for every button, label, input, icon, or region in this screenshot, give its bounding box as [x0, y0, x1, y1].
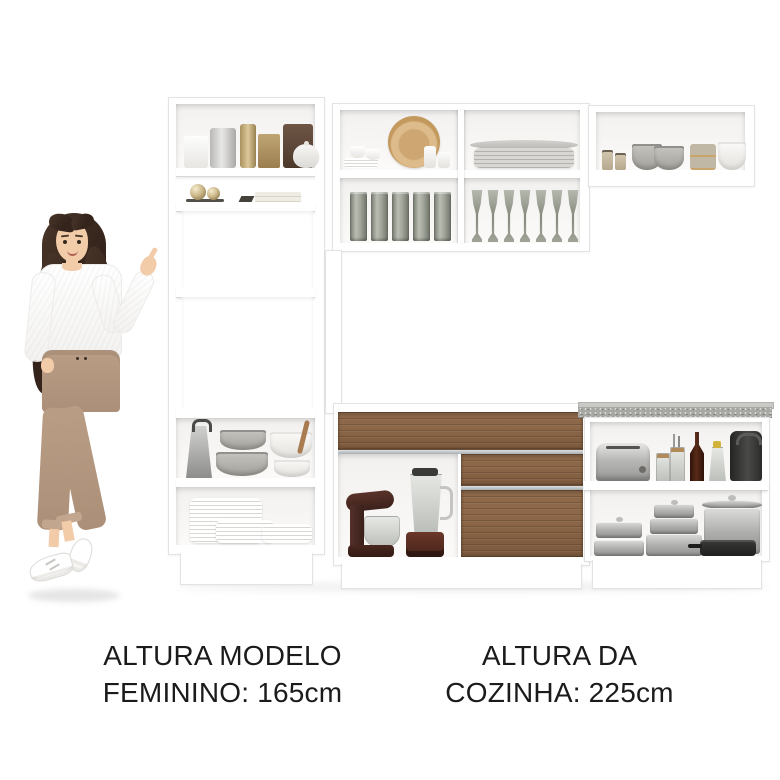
caption-kitchen-height-line1: ALTURA DA	[437, 637, 682, 674]
plate-stack-small	[262, 524, 312, 543]
right-base-plinth	[592, 560, 762, 589]
drawer-lower	[461, 490, 583, 557]
ankle-front	[61, 520, 74, 541]
gray-bowl-top	[220, 430, 266, 450]
caption-model-height: ALTURA MODELO FEMININO: 165cm	[95, 637, 350, 711]
hutch-cell-bottom-right	[464, 178, 580, 243]
stand-mixer-base	[348, 545, 394, 557]
tumbler	[434, 192, 451, 241]
decor-sphere-small	[207, 187, 220, 200]
teapot	[293, 144, 319, 168]
frying-pan	[700, 540, 756, 556]
gold-canister	[240, 124, 256, 168]
hutch-divider	[458, 110, 464, 243]
toaster-slot	[606, 446, 640, 449]
beige-canister-2	[615, 153, 626, 170]
decor-sphere-large	[190, 184, 206, 200]
gold-box	[258, 134, 280, 168]
utensil-jar	[670, 447, 685, 483]
pot-with-lid	[596, 522, 642, 538]
stand-mixer-bowl	[364, 516, 400, 548]
grater-handle	[192, 419, 212, 432]
caption-kitchen-height-line2: COZINHA: 225cm	[437, 674, 682, 711]
coffee-machine-lever	[736, 433, 762, 445]
tumbler	[371, 192, 388, 241]
stand-mixer-column	[350, 505, 364, 547]
steamer-knob	[671, 500, 678, 505]
trouser-button-2	[84, 357, 87, 360]
carafe-stopper	[713, 441, 721, 448]
canister-stack	[690, 144, 716, 170]
wide-drawer	[338, 412, 583, 450]
small-jar-2	[438, 152, 450, 168]
blender-handle	[440, 486, 453, 520]
drawer-upper	[461, 454, 583, 486]
books-stack	[255, 192, 301, 202]
pot	[594, 540, 644, 556]
steamer-tier-middle	[650, 518, 698, 534]
fluted-bowl-2	[654, 146, 684, 170]
hutch-support-panel	[325, 250, 342, 414]
silver-canister	[210, 128, 236, 168]
cabinet-plinth	[180, 553, 313, 585]
tumbler	[392, 192, 409, 241]
center-base-plinth	[341, 564, 582, 589]
white-bowl-nested	[718, 142, 746, 170]
ankle-back	[49, 529, 60, 547]
steamer-tier-top	[654, 504, 694, 518]
trousers	[42, 350, 120, 412]
product-image: ALTURA MODELO FEMININO: 165cm ALTURA DA …	[0, 0, 780, 780]
blender-lid	[412, 468, 438, 476]
white-canister	[184, 136, 208, 168]
trouser-button	[76, 357, 79, 360]
small-jar	[424, 146, 436, 168]
utensils	[673, 434, 675, 448]
teapot-knob	[304, 141, 309, 146]
gray-plate-stack	[474, 148, 574, 168]
caption-kitchen-height: ALTURA DA COZINHA: 225cm	[437, 637, 682, 711]
open-niche-upper	[182, 211, 313, 287]
caption-model-height-line2: FEMININO: 165cm	[95, 674, 350, 711]
white-bowl-stack	[274, 460, 310, 477]
spice-jar	[656, 453, 670, 483]
shelf	[176, 168, 315, 177]
blender-base	[406, 532, 444, 557]
tumbler	[350, 192, 367, 241]
model-shadow	[28, 589, 120, 602]
neckline	[62, 263, 82, 271]
caption-model-height-line1: ALTURA MODELO	[95, 637, 350, 674]
tumbler	[413, 192, 430, 241]
pocket-hand	[41, 358, 54, 373]
teacup-2	[366, 149, 380, 160]
stock-pot-knob	[728, 495, 736, 501]
teacup	[350, 146, 365, 158]
eye-left	[63, 240, 67, 244]
pot-lid-knob	[616, 517, 623, 522]
gray-bowl-bottom	[216, 452, 268, 476]
toaster-dial	[639, 466, 646, 473]
open-niche-lower	[182, 297, 313, 408]
beige-canister	[602, 150, 613, 170]
eye-right	[77, 240, 81, 244]
frying-pan-handle	[688, 544, 702, 548]
